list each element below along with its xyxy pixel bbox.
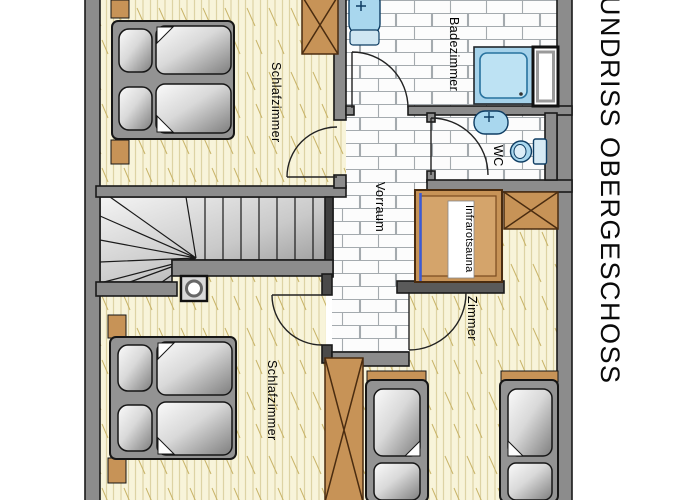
pillow	[118, 405, 152, 451]
chimney-bottom	[325, 358, 363, 500]
wall-bathroom-south-stub	[346, 106, 354, 115]
mattress	[374, 389, 420, 456]
chimney-top	[302, 0, 338, 54]
mattress	[508, 389, 552, 456]
double-bed-top	[111, 0, 234, 164]
pillow	[119, 29, 152, 72]
wall-bedroom-bottom-north	[96, 282, 177, 296]
wall-exterior-left	[85, 0, 100, 500]
plan-title: UNDRISS OBERGESCHOSS	[595, 0, 625, 385]
shower-drain	[519, 92, 523, 96]
label-hallway: Vorraum	[373, 182, 387, 232]
floor-plan-image: Schlafzimmer Badezimmer WC Vorraum Infra…	[0, 0, 700, 500]
wall-bedroom-bottom-east-stub-top	[322, 274, 332, 295]
nightstand	[111, 0, 129, 18]
wc-sink	[474, 111, 508, 134]
single-bed-left	[366, 371, 428, 500]
single-bed-right	[500, 371, 558, 500]
label-bedroom-bottom: Schlafzimmer	[265, 360, 279, 441]
hallway-floor-a	[346, 112, 435, 198]
nightstand	[108, 315, 126, 338]
pillow	[374, 463, 420, 500]
label-bathroom: Badezimmer	[447, 17, 461, 91]
label-bedroom-top: Schlafzimmer	[269, 62, 283, 143]
wall-bedroom-top-south	[96, 186, 346, 197]
mattress	[157, 342, 232, 395]
chimney-mid	[504, 192, 558, 229]
wall-niche	[533, 47, 558, 106]
pillow	[119, 87, 152, 130]
wall-stair-south	[172, 260, 333, 276]
pillow	[118, 345, 152, 391]
nightstand	[111, 140, 129, 164]
shower	[474, 47, 533, 104]
label-sauna: Infrarotsauna	[463, 205, 475, 273]
infrared-sauna	[415, 190, 502, 282]
room-floor-a	[502, 228, 558, 298]
nightstand	[108, 458, 126, 483]
floor-plan-svg: Schlafzimmer Badezimmer WC Vorraum Infra…	[0, 0, 700, 500]
mattress	[157, 402, 232, 455]
pipe-fixture	[181, 276, 207, 301]
label-wc: WC	[491, 145, 505, 167]
double-bed-bottom	[108, 315, 236, 483]
bathroom-sink	[349, 0, 380, 45]
pillow	[508, 463, 552, 500]
label-room: Zimmer	[465, 296, 479, 341]
